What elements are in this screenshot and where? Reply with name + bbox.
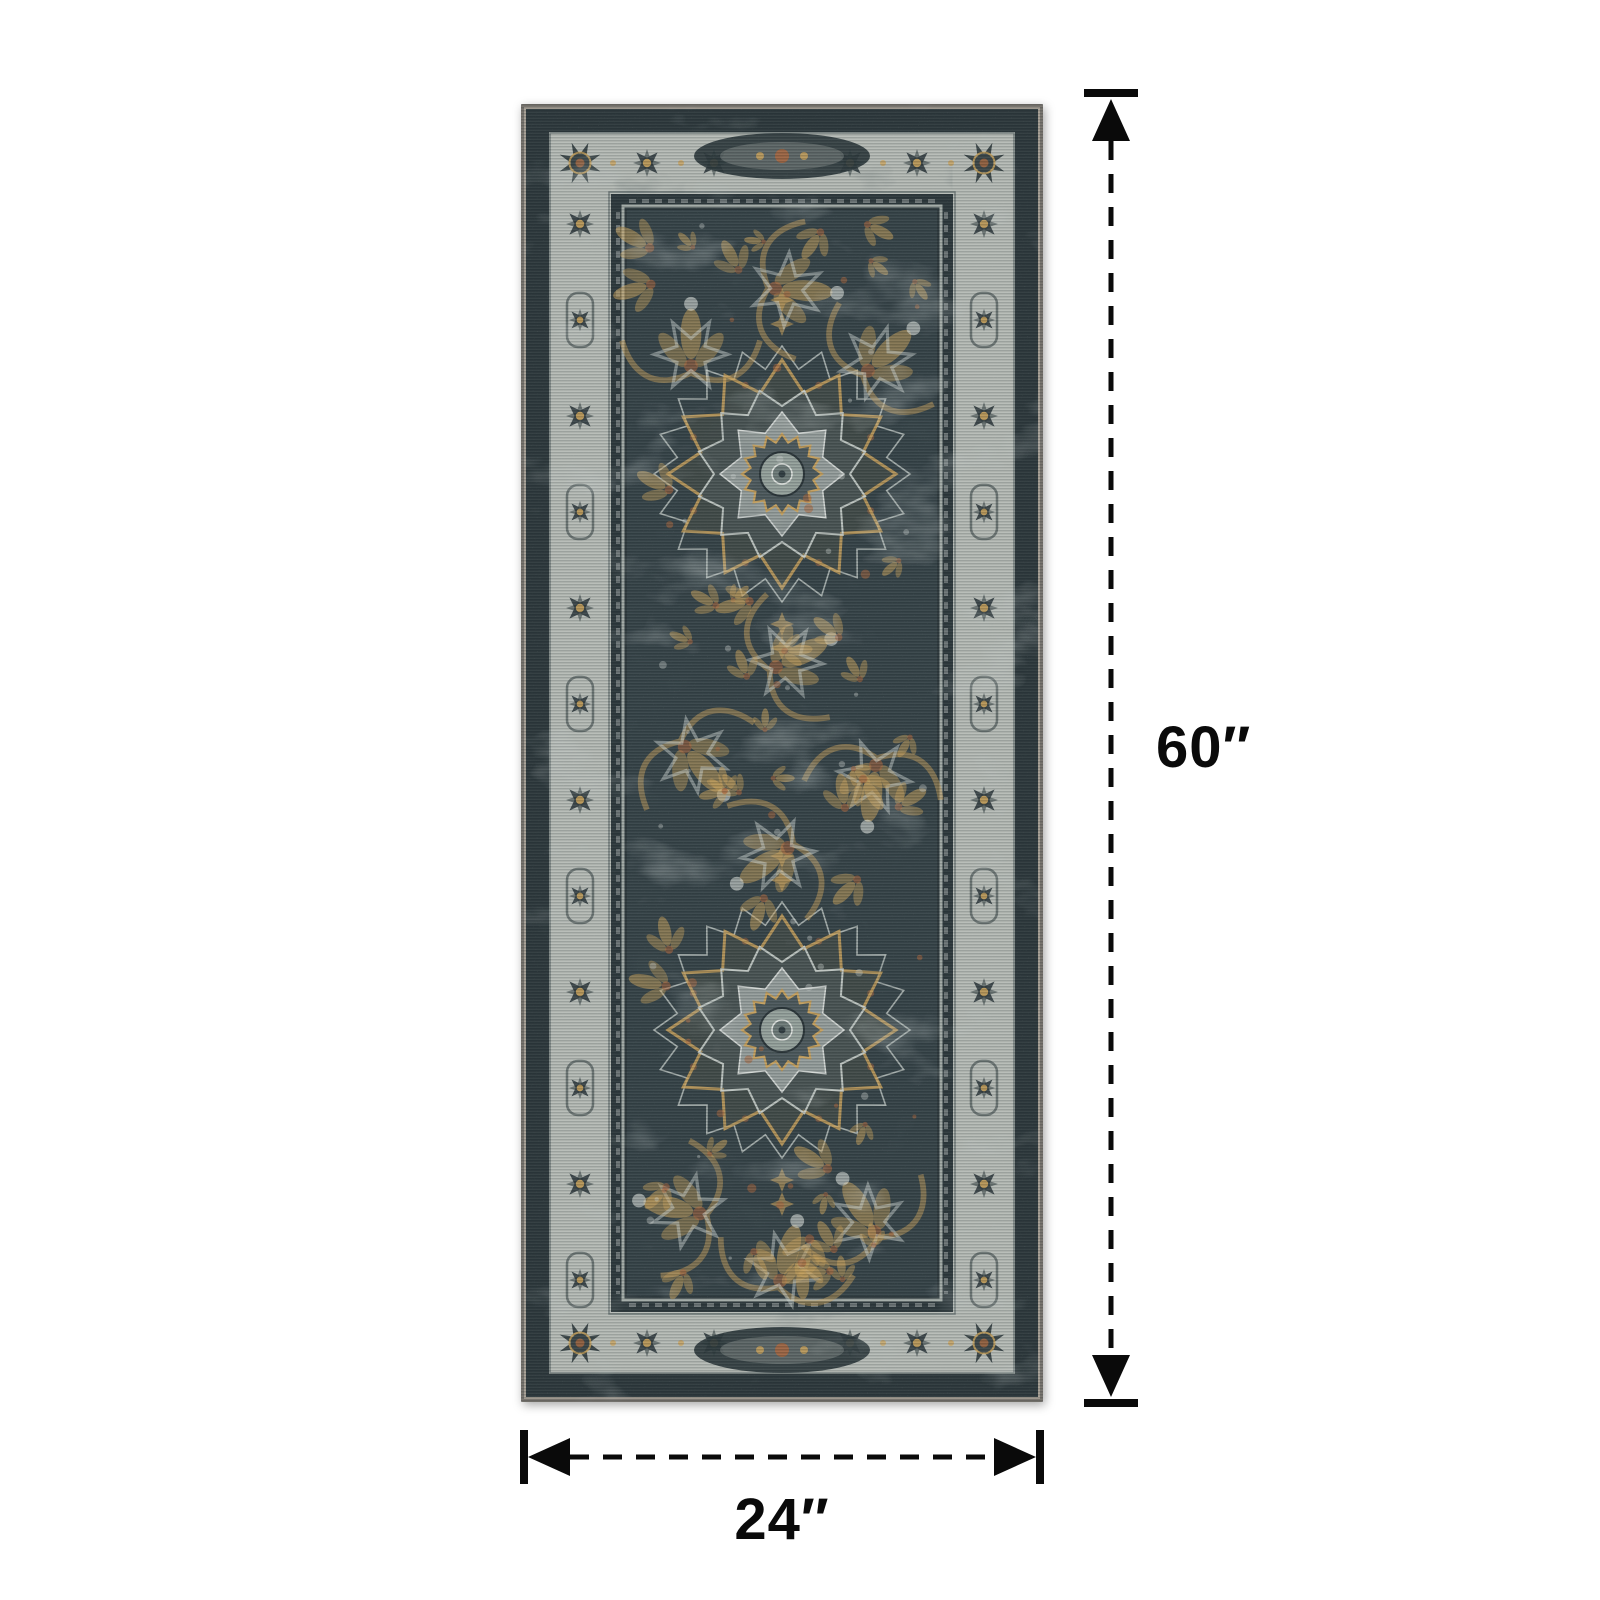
width-label: 24″: [682, 1490, 882, 1550]
arrow-up-icon: [1092, 99, 1130, 141]
dimension-left-cap: [520, 1430, 528, 1484]
rug-photo: [521, 104, 1043, 1402]
dimension-bottom-cap: [1084, 1399, 1138, 1407]
height-label: 60″: [1156, 718, 1251, 778]
arrow-right-icon: [994, 1438, 1036, 1476]
dimension-right-cap: [1036, 1430, 1044, 1484]
dimension-top-cap: [1084, 89, 1138, 97]
height-dimension-line: [1056, 85, 1166, 1425]
product-dimension-image: 60″ 24″: [0, 0, 1600, 1600]
width-dimension-line: [510, 1425, 1055, 1495]
arrow-down-icon: [1092, 1355, 1130, 1397]
arrow-left-icon: [528, 1438, 570, 1476]
rug-grain-texture: [521, 104, 1043, 1402]
rug-graphic: [521, 104, 1043, 1402]
